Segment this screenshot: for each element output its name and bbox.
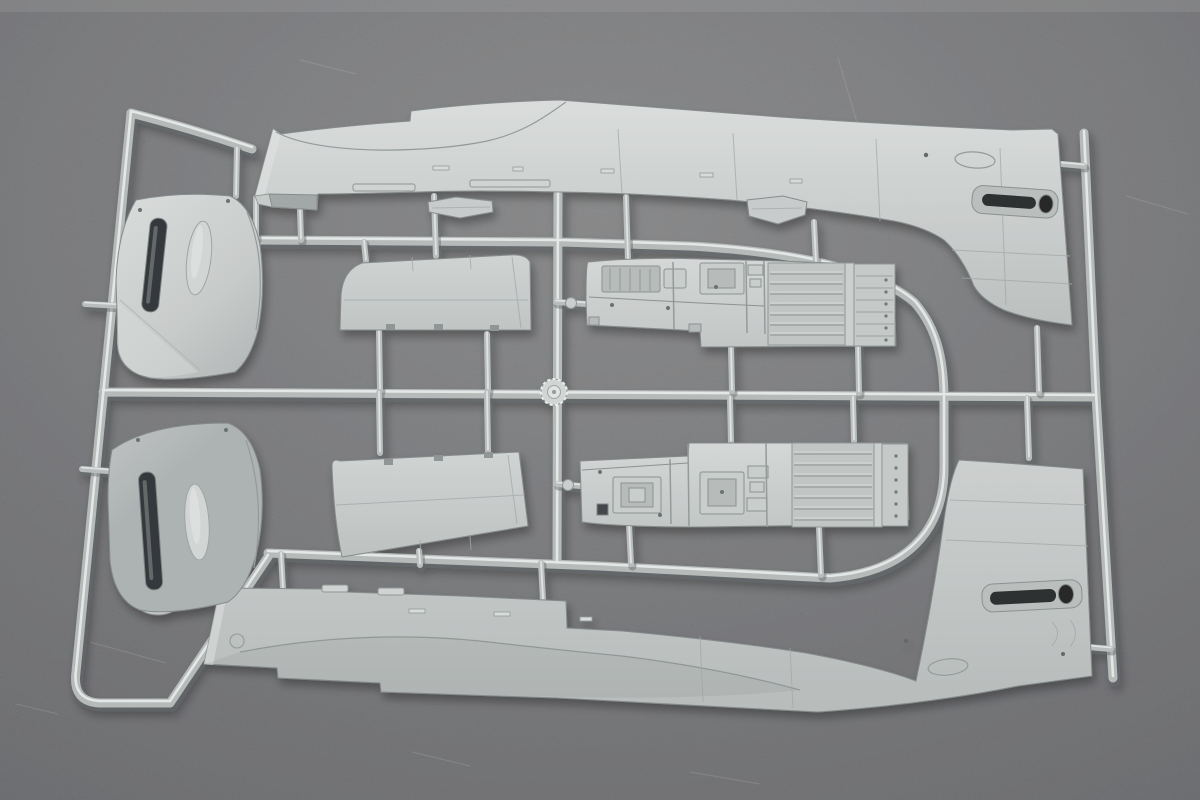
photo-grain-overlay [0,0,1200,800]
sprue-photo [0,0,1200,800]
